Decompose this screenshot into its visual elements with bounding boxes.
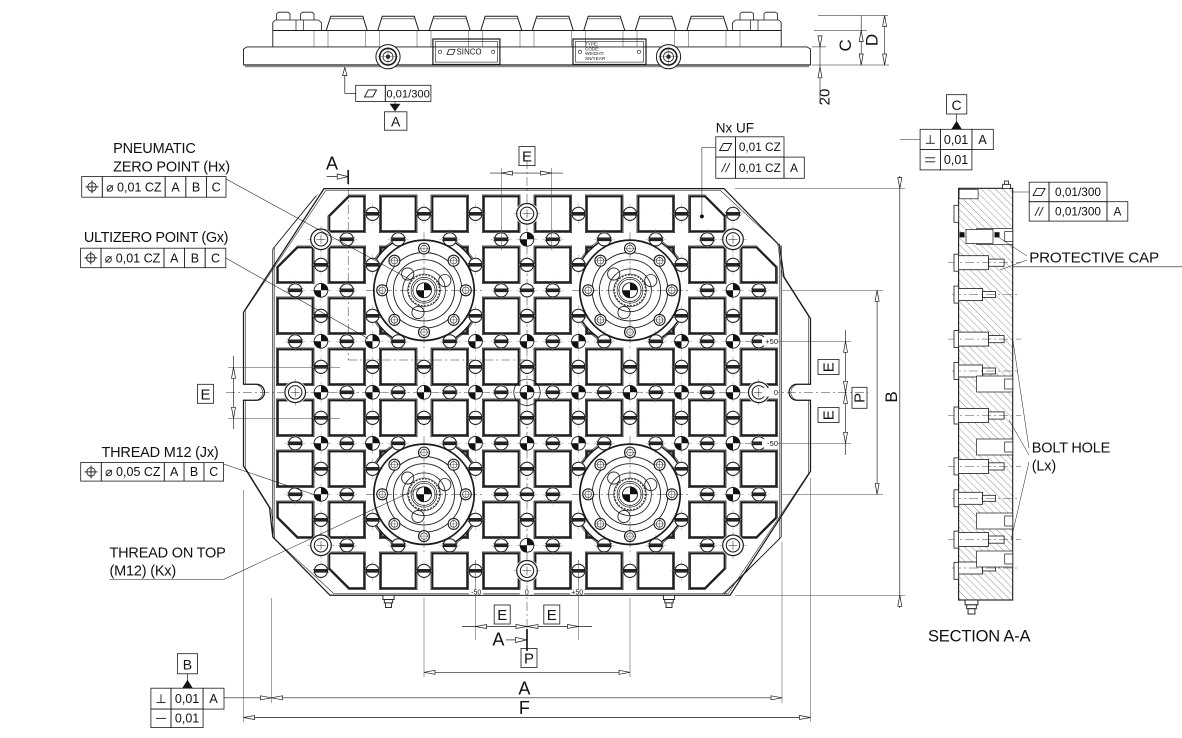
svg-text:A: A	[978, 133, 987, 147]
svg-text:0,01/300: 0,01/300	[1055, 185, 1101, 199]
svg-text:THREAD M12 (Jx): THREAD M12 (Jx)	[102, 445, 219, 461]
svg-text:E: E	[821, 362, 838, 372]
svg-text:0,01: 0,01	[175, 692, 199, 706]
svg-text:SECTION A-A: SECTION A-A	[928, 628, 1031, 646]
svg-text:0,01: 0,01	[944, 133, 968, 147]
svg-text:A: A	[790, 161, 798, 175]
svg-text:0,01 CZ: 0,01 CZ	[739, 140, 781, 154]
svg-text:0,01: 0,01	[175, 712, 199, 726]
svg-text:SINCO: SINCO	[457, 48, 482, 57]
svg-text:A: A	[209, 692, 218, 706]
svg-text:+50: +50	[571, 590, 583, 597]
svg-text:B: B	[191, 251, 199, 265]
svg-text:0,01: 0,01	[944, 153, 968, 167]
svg-text:A: A	[1113, 205, 1121, 219]
svg-text:P: P	[852, 393, 869, 403]
svg-text:0,01 CZ: 0,01 CZ	[739, 161, 781, 175]
svg-text:B: B	[882, 391, 901, 402]
svg-text:⌀ 0,05 CZ: ⌀ 0,05 CZ	[105, 465, 161, 479]
svg-text:C: C	[952, 97, 962, 113]
svg-text:A: A	[492, 629, 504, 649]
svg-text:A: A	[170, 465, 179, 479]
svg-text:PNEUMATIC: PNEUMATIC	[113, 141, 196, 157]
svg-text:B: B	[183, 657, 192, 673]
svg-text:C: C	[211, 251, 220, 265]
svg-text:⌀ 0,01 CZ: ⌀ 0,01 CZ	[106, 180, 162, 194]
svg-text:PROTECTIVE CAP: PROTECTIVE CAP	[1029, 250, 1159, 267]
svg-text:0,01/300: 0,01/300	[386, 88, 430, 100]
svg-text:C: C	[836, 39, 855, 51]
svg-text:E: E	[200, 386, 210, 403]
svg-text:A: A	[170, 251, 179, 265]
svg-text:Nx UF: Nx UF	[716, 120, 754, 135]
svg-text:E: E	[497, 607, 507, 624]
svg-text:B: B	[192, 180, 200, 194]
svg-text:E: E	[821, 410, 838, 420]
svg-text:(Lx): (Lx)	[1032, 459, 1056, 475]
svg-text:0: 0	[774, 388, 778, 397]
svg-text:BOLT HOLE: BOLT HOLE	[1032, 441, 1111, 457]
svg-text:E: E	[522, 149, 532, 166]
svg-text:0: 0	[525, 590, 529, 597]
svg-text:F: F	[519, 698, 530, 718]
svg-text:A: A	[518, 678, 530, 698]
svg-text:A: A	[391, 114, 401, 130]
svg-text:20: 20	[817, 89, 834, 106]
svg-text:SN/YEAR :: SN/YEAR :	[585, 56, 608, 61]
svg-text:B: B	[190, 465, 198, 479]
svg-text:P: P	[524, 651, 534, 668]
svg-text:0,01/300: 0,01/300	[1055, 205, 1101, 219]
svg-text:+50: +50	[765, 337, 778, 346]
svg-text:ZERO POINT (Hx): ZERO POINT (Hx)	[113, 159, 230, 175]
svg-text:C: C	[212, 180, 221, 194]
svg-text:A: A	[171, 180, 180, 194]
svg-text:ULTIZERO POINT (Gx): ULTIZERO POINT (Gx)	[84, 230, 228, 246]
svg-text:D: D	[863, 34, 882, 46]
svg-text:THREAD ON TOP: THREAD ON TOP	[110, 545, 226, 561]
svg-text:-50: -50	[471, 590, 481, 597]
svg-text:C: C	[209, 465, 218, 479]
svg-text:⌀ 0,01 CZ: ⌀ 0,01 CZ	[105, 251, 161, 265]
svg-text:A: A	[326, 153, 338, 173]
svg-text:E: E	[547, 607, 557, 624]
svg-text:(M12) (Kx): (M12) (Kx)	[110, 564, 176, 580]
svg-text:-50: -50	[767, 439, 778, 448]
